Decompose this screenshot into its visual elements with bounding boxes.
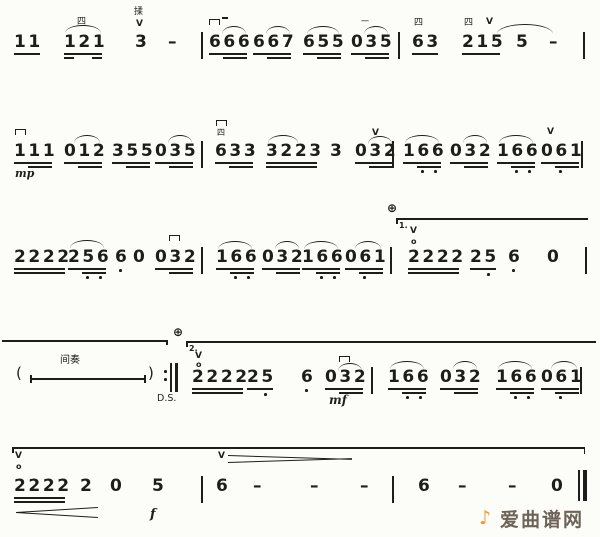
octave-dot [421,170,424,173]
note-group: 035 [155,142,198,161]
beam [555,392,579,394]
octave-dot [434,170,437,173]
beam [325,388,363,390]
octave-dot [333,276,336,279]
pull-bow-icon [216,120,227,126]
note-digits: 3 [330,142,344,161]
beam [541,388,579,390]
note-group: 256 [68,248,111,267]
beam [192,392,243,394]
slur [275,241,299,249]
note-digits: 166 [388,368,431,387]
beam [68,268,106,270]
note-group: 032 mf [325,368,368,387]
barline [201,141,203,168]
note-group: 3 揉 V [135,33,149,52]
octave-dot [528,170,531,173]
note-group: 6 [301,368,315,387]
note-group: 166 [497,142,540,161]
beam [126,166,150,168]
octave-dot [305,389,308,392]
duration-dash: – [458,477,469,496]
barline [392,141,394,168]
beam [215,162,253,164]
slur [168,135,192,143]
note-group: 3 [330,142,344,161]
coda-icon: ⊕ [387,202,397,214]
note-group: 166 [403,142,446,161]
beam [303,53,341,55]
octave-dot [514,396,517,399]
interlude-line [30,378,146,380]
barline [581,141,583,168]
note-digits: 012 [64,142,107,161]
note-digits: 6 [216,477,230,496]
octave-dot [119,269,122,272]
octave-dot [559,170,562,173]
note-digits: 032 [440,368,483,387]
beam [388,388,426,390]
beam [276,272,300,274]
note-group: 121 四 [64,33,107,52]
slur [307,26,339,34]
finger-number: 四 [77,18,86,27]
note-digits: 121 [64,33,107,52]
beam [541,162,579,164]
barline [398,32,400,59]
duration-dash: – [508,477,519,496]
beam [497,162,535,164]
note-group: 6 [418,477,432,496]
note-group: 355 [112,142,155,161]
octave-dot [406,396,409,399]
beam [192,388,243,390]
note-group: 25 [247,368,276,387]
beam [316,272,340,274]
dynamic-mf: mf [329,394,347,406]
note-digits: 2222 [192,368,250,387]
note-group: 061 [541,368,584,387]
up-bow-mark: V [136,20,143,29]
pull-bow-icon [169,235,180,241]
note-group: 0 [551,477,565,496]
volta-bracket [186,341,596,343]
duration-dash: – [310,477,321,496]
note-digits: 035 [351,33,394,52]
note-digits: 3223 [266,142,324,161]
note-group: 5 [152,477,166,496]
note-group: 667 [253,33,296,52]
note-group: 032 [262,248,305,267]
note-digits: 25 [470,248,499,267]
beam [64,162,102,164]
note-group: 166 [496,368,539,387]
barline [201,32,203,59]
beam [14,162,52,164]
beam [267,57,291,59]
slur [266,26,290,34]
beam [365,57,389,59]
barline [371,367,373,394]
beam [262,268,300,270]
slur [390,361,424,369]
beam [408,268,459,270]
note-group: 2222 [192,368,250,387]
slur [304,241,338,249]
note-group: 032 [450,142,493,161]
note-group: 633 四 [215,142,258,161]
octave-dot [512,269,515,272]
beam [317,57,341,59]
beam [302,268,340,270]
slur [74,135,100,143]
pull-bow-icon [339,356,350,362]
finger-number: 四 [414,19,423,28]
note-group: 11 [14,33,43,52]
beam [230,272,254,274]
note-digits: 0 [133,248,147,267]
note-digits: 25 [247,368,276,387]
barline [201,247,203,274]
note-digits: 215 [462,33,505,52]
beam [440,388,478,390]
octave-dot [264,393,267,396]
final-barline-thin [578,470,580,501]
octave-dot [234,276,237,279]
volta-bracket [396,218,588,220]
finger-number: 四 [217,129,225,137]
note-digits: 2 [80,477,94,496]
final-barline-thick [583,470,587,501]
music-note-icon: ♪ [479,509,491,528]
interlude-line-tick [144,375,146,383]
octave-dot [86,276,89,279]
repeat-dot [164,370,167,373]
slur [355,241,381,249]
note-digits: 6 [115,248,129,267]
note-group: 0 [133,248,147,267]
repeat-dot [164,378,167,381]
note-group: 3223 [266,142,324,161]
note-digits: 63 [412,33,441,52]
note-digits: 032 [450,142,493,161]
slur [499,135,533,143]
crescendo-hairpin [16,512,98,518]
duration-dash: – [253,477,264,496]
note-digits: 166 [497,142,540,161]
barline [583,32,585,59]
note-digits: 6 [418,477,432,496]
open-string-mark: o [16,463,22,471]
note-digits: 633 [215,142,258,161]
beam [450,162,488,164]
up-bow-mark: V [547,128,554,137]
pull-bow-icon [209,19,220,25]
beam [82,272,106,274]
note-group: 2222 [14,477,72,496]
note-group: 111 mp [14,142,57,161]
note-digits: 5 [516,33,530,52]
note-group: 666 [209,33,252,52]
octave-dot [559,396,562,399]
barline [392,476,394,503]
interlude-paren-left: ( [16,366,22,381]
beam [345,268,383,270]
beam [454,392,478,394]
note-group: 061 [345,248,388,267]
beam [355,162,393,164]
sheet-music-page: 11 121 四 3 揉 V – 666 667 655 035 [0,0,600,537]
slur [551,361,577,369]
note-digits: 111 [14,142,57,161]
note-group: 2222 [408,248,466,267]
beam [464,166,488,168]
note-group: 166 [302,248,345,267]
slur [222,26,246,34]
up-bow-mark: V [410,227,417,236]
note-digits: 061 [541,368,584,387]
octave-dot [99,276,102,279]
beam [266,166,317,168]
note-group: 0 [110,477,124,496]
note-digits: 0 [547,248,561,267]
note-group: 035 一 [351,33,394,52]
beam [412,53,438,55]
beam [209,53,247,55]
volta-bracket-tick [584,447,586,454]
note-digits: 035 [155,142,198,161]
beam [14,497,65,499]
note-group: 061 V [541,142,584,161]
interlude-label: 间奏 [60,356,80,366]
repeat-barline [170,363,172,392]
ds-label: D.S. [157,394,176,404]
note-digits: 256 [68,248,111,267]
note-group: 6 [115,248,129,267]
slur [218,241,252,249]
slur [268,135,298,143]
note-digits: 0 [110,477,124,496]
octave-dot [515,170,518,173]
note-digits: 3 [135,33,149,52]
volta-bracket-tick [396,218,398,224]
note-digits: 6 [301,368,315,387]
duration-dash: – [549,33,560,52]
note-digits: 2222 [14,248,72,267]
beam [14,268,65,270]
finger-one-mark [222,17,228,19]
note-group: 0 [547,248,561,267]
note-digits: 355 [112,142,155,161]
volta-bracket [2,340,168,342]
note-digits: 666 [209,33,252,52]
slur [463,135,487,143]
note-group: 655 [303,33,346,52]
octave-dot [419,396,422,399]
note-group: 6 [508,248,522,267]
octave-dot [247,276,250,279]
beam [369,166,393,168]
note-group: 6 V [216,477,230,496]
duration-dash: – [168,33,179,52]
note-digits: 0 [551,477,565,496]
beam [155,162,193,164]
note-digits: 166 [403,142,446,161]
note-digits: 2222 [408,248,466,267]
volta-number: 1. [399,222,408,230]
up-bow-mark: V [486,18,493,27]
note-group: 2 [80,477,94,496]
octave-dot [527,396,530,399]
slur [338,363,362,371]
beam [351,53,389,55]
note-digits: 166 [496,368,539,387]
beam [402,392,426,394]
beam [64,57,74,59]
up-bow-mark: V [218,452,225,461]
note-digits: 667 [253,33,296,52]
note-digits: 061 [345,248,388,267]
note-group: 012 [64,142,107,161]
dynamic-f: f [150,508,156,521]
note-digits: 032 [262,248,305,267]
barline [585,247,587,274]
interlude-line-tick [30,375,32,383]
note-digits: 2222 [14,477,72,496]
octave-dot [320,276,323,279]
beam [14,272,65,274]
note-digits: 5 [152,477,166,496]
beam [555,166,579,168]
barline [390,247,392,274]
beam [253,53,291,55]
finger-number: 四 [464,19,473,28]
volta-bracket-tick [186,341,188,347]
pull-bow-icon [15,129,26,135]
note-group: 032 [440,368,483,387]
beam [510,392,534,394]
beam [403,162,441,164]
beam [112,162,150,164]
dynamic-mp: mp [15,168,34,179]
note-group: 63 四 [412,33,441,52]
duration-dash: – [360,477,371,496]
note-group: 5 [516,33,530,52]
repeat-barline [175,363,179,392]
beam [64,53,102,55]
finger-number: 一 [361,18,369,26]
decrescendo-hairpin [228,458,352,463]
beam [408,272,459,274]
slur [453,361,477,369]
beam [247,388,273,390]
note-digits: 11 [14,33,43,52]
note-digits: 032 [155,248,198,267]
note-group: 215 四 V [462,33,505,52]
volta-bracket [12,447,585,449]
octave-dot [363,276,366,279]
beam [266,162,317,164]
note-digits: 166 [216,248,259,267]
beam [169,272,193,274]
beam [223,57,247,59]
up-bow-mark: V [15,452,22,461]
vibrato-mark: 揉 [134,8,143,17]
beam [92,57,102,59]
open-string-mark: o [411,238,417,246]
slur [368,136,392,144]
octave-dot [487,273,490,276]
coda-icon: ⊕ [173,326,183,338]
slur [498,361,532,369]
barline [201,476,203,503]
note-digits: 655 [303,33,346,52]
note-group: 166 [388,368,431,387]
watermark-text: 爱曲谱网 [500,511,584,530]
beam [14,501,65,503]
beam [14,53,40,55]
beam [470,268,496,270]
slur [364,26,388,34]
volta-bracket-tick [166,340,168,345]
note-digits: 166 [302,248,345,267]
beam [216,268,254,270]
beam [511,166,535,168]
volta-bracket-tick [12,447,14,453]
note-digits: 6 [508,248,522,267]
note-group: 032 [155,248,198,267]
beam [359,272,383,274]
note-group: 2222 [14,248,72,267]
beam [462,53,500,55]
interlude-paren-right: ) [148,366,154,381]
slur [405,135,439,143]
barline [580,367,582,394]
beam [417,166,441,168]
slur [70,240,104,248]
beam [78,166,102,168]
note-digits: 061 [541,142,584,161]
beam [229,166,253,168]
beam [169,166,193,168]
beam [496,388,534,390]
note-group: 25 [470,248,499,267]
note-group: 166 [216,248,259,267]
beam [155,268,193,270]
